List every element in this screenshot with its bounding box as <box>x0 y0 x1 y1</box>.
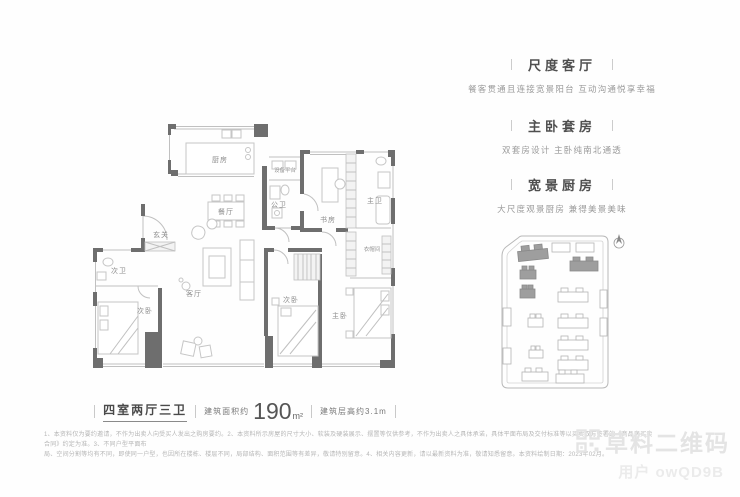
room-label-guest-bath: 公卫 <box>271 201 287 209</box>
area-value: 190 <box>253 400 291 423</box>
disclaimer-line1: 1、本资料仅为要约邀请，不作为出卖人向受买人发出之购房要约。2、本资料所示房屋的… <box>44 430 656 450</box>
floor-height: 建筑层高约3.1m <box>320 406 387 417</box>
divider <box>511 120 512 131</box>
watermark-user: 用户 owQD9B <box>570 461 730 482</box>
watermark-brand: 草料二维码 <box>605 424 730 458</box>
feature-desc: 餐客贯通且连接宽景阳台 互动沟通悦享幸福 <box>462 83 662 95</box>
kitchen-island <box>186 130 254 174</box>
room-label-second-bath: 次卫 <box>111 266 127 275</box>
room-label-kitchen: 厨房 <box>212 155 228 164</box>
feature-living: 尺度客厅 餐客贯通且连接宽景阳台 互动沟通悦享幸福 <box>462 55 662 95</box>
bed-second-bedroom-mid <box>272 298 318 356</box>
room-label-living: 客厅 <box>186 289 202 298</box>
unit-summary: 四室两厅三卫 建筑面积约 190 m² 建筑层高约3.1m <box>80 400 410 423</box>
room-label-second-bedroom-west: 次卧 <box>137 306 153 315</box>
page: 厨房 设备平台 餐厅 公卫 书房 主卫 玄关 次卫 次卧 客厅 次卧 主卧 衣帽… <box>0 0 740 497</box>
living-room-furniture <box>179 219 254 358</box>
compass-icon <box>614 234 624 248</box>
divider <box>511 179 512 190</box>
siteplan-drawing <box>492 230 632 402</box>
floorplan-drawing: 厨房 设备平台 餐厅 公卫 书房 主卫 玄关 次卫 次卧 客厅 次卧 主卧 衣帽… <box>88 110 403 375</box>
divider <box>612 120 613 131</box>
room-label-master-bath: 主卫 <box>367 196 383 205</box>
room-label-dining: 餐厅 <box>218 207 234 216</box>
disclaimer-line2: 局、空间分割等均有不同，即使同一户型，也因所在楼栋、楼层不同，局部结构、面积范围… <box>44 450 656 460</box>
qr-icon <box>576 429 600 453</box>
feature-title: 主卧套房 <box>528 116 596 135</box>
bed-second-bedroom-west <box>98 302 138 354</box>
divider <box>511 59 512 70</box>
divider <box>94 405 95 418</box>
feature-kitchen: 宽景厨房 大尺度观景厨房 兼得美景美味 <box>462 175 662 215</box>
room-label-foyer: 玄关 <box>153 230 169 239</box>
divider <box>612 59 613 70</box>
area-label: 建筑面积约 <box>204 406 249 417</box>
divider <box>395 405 396 418</box>
study-desk <box>322 168 345 202</box>
area-unit: m² <box>293 411 304 421</box>
feature-master-suite: 主卧套房 双套房设计 主卧纯南北通透 <box>462 116 662 156</box>
divider <box>195 405 196 418</box>
disclaimer: 1、本资料仅为要约邀请，不作为出卖人向受买人发出之购房要约。2、本资料所示房屋的… <box>44 430 656 460</box>
room-label-walkin-closet: 衣帽间 <box>364 245 381 253</box>
layout-type: 四室两厅三卫 <box>103 401 187 422</box>
bed-master-bedroom <box>346 288 391 338</box>
feature-title: 尺度客厅 <box>528 55 596 74</box>
feature-title: 宽景厨房 <box>528 175 596 194</box>
feature-desc: 大尺度观景厨房 兼得美景美味 <box>462 203 662 215</box>
room-label-equipment-platform: 设备平台 <box>274 166 297 174</box>
feature-desc: 双套房设计 主卧纯南北通透 <box>462 144 662 156</box>
watermark: 草料二维码 用户 owQD9B <box>570 424 730 482</box>
divider <box>612 179 613 190</box>
room-label-master-bedroom: 主卧 <box>332 311 348 320</box>
divider <box>311 405 312 418</box>
master-bathroom-fixtures <box>376 157 390 224</box>
room-label-second-bedroom-mid: 次卧 <box>283 295 299 304</box>
room-label-study: 书房 <box>320 215 336 224</box>
